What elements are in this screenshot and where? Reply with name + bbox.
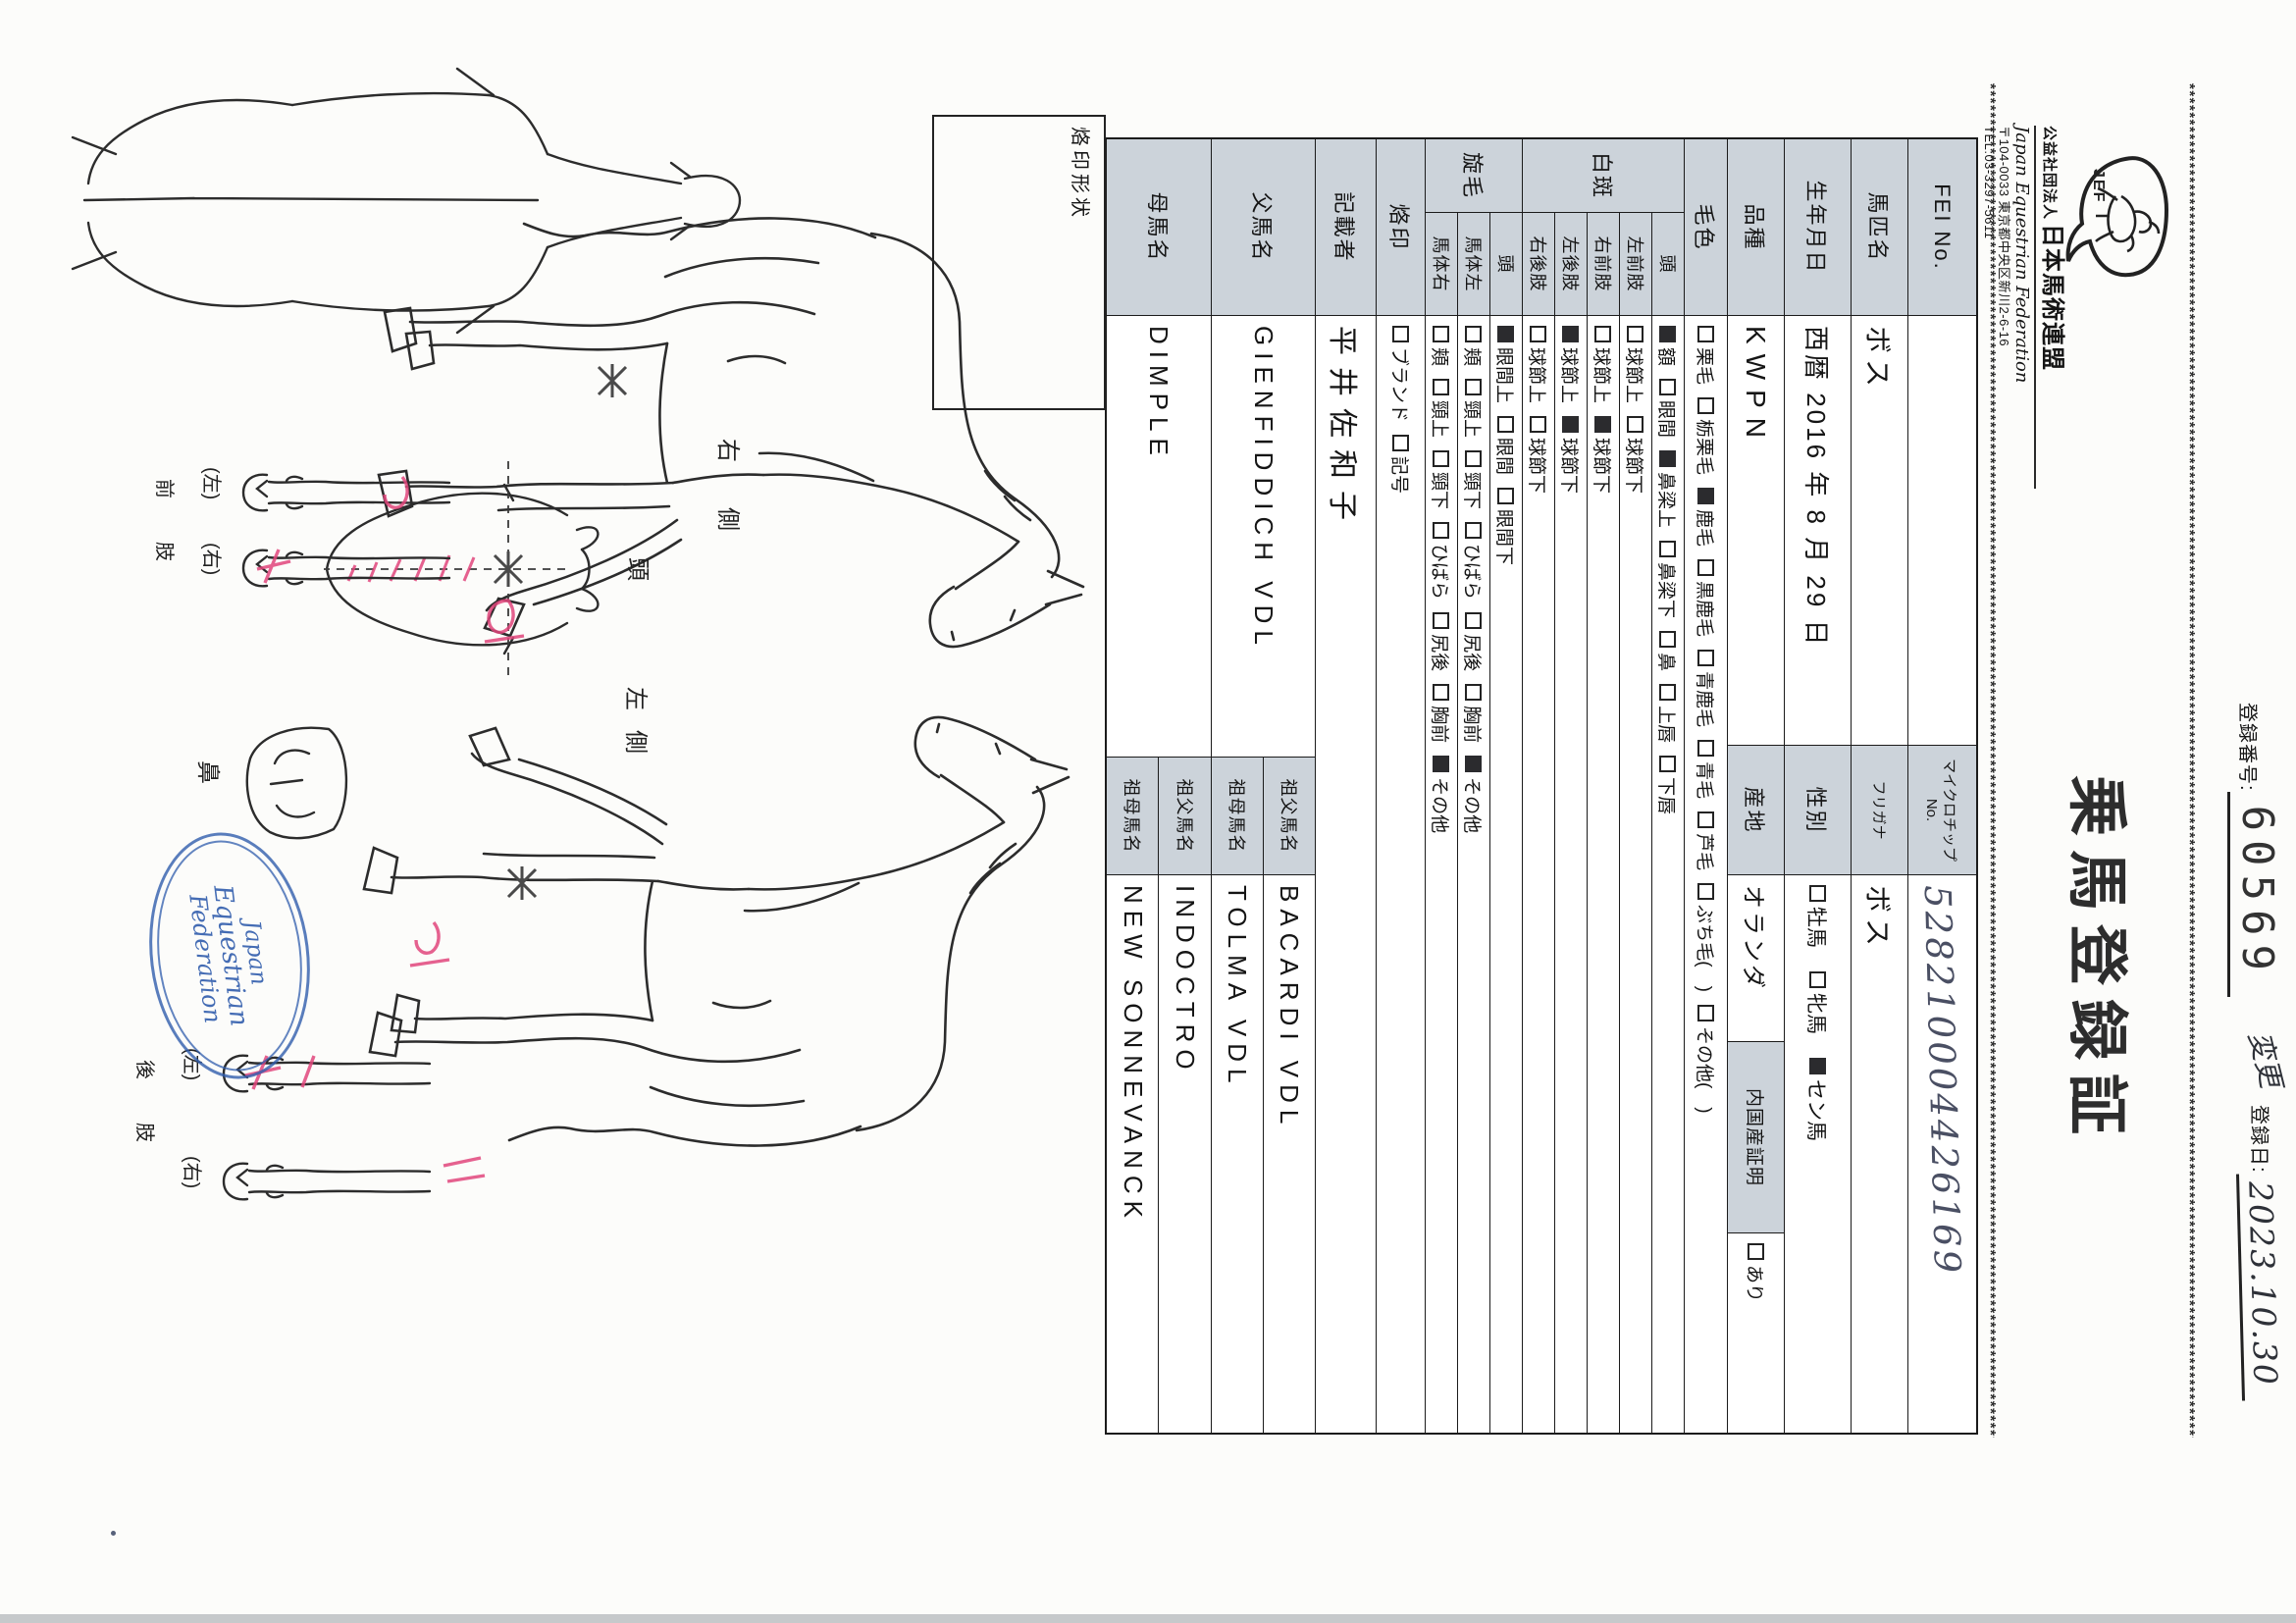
checkbox-label: 鼻: [1655, 653, 1682, 671]
checkbox-label: 栃栗毛: [1693, 419, 1719, 475]
checkbox-label: 栗毛: [1693, 347, 1719, 385]
hindlimb-label: 後肢: [132, 1060, 161, 1185]
checkbox-icon: [1628, 326, 1644, 342]
checkbox-option: 眼間上: [1493, 326, 1520, 403]
table-row-birth: 生年月日 西暦 2016 年 8 月 29 日 性別 牡馬牝馬セン馬: [1784, 139, 1851, 1433]
body-whorl-x-marks: [508, 364, 626, 900]
recorder-label: 記載者: [1316, 139, 1376, 316]
checkbox-checked-icon: [1660, 326, 1677, 342]
organization-name-en: Japan Equestrian Federation: [2011, 126, 2032, 489]
checkbox-checked-icon: [1697, 488, 1714, 504]
checkbox-icon: [1697, 883, 1714, 900]
checkbox-option: 青鹿毛: [1693, 650, 1719, 727]
table-row-brand: 烙印 ブランド記号: [1376, 139, 1425, 1433]
registration-date-label: 登録日:: [2239, 1105, 2275, 1174]
logo-jef-text: JEF: [2090, 169, 2107, 203]
checkbox-icon: [1660, 684, 1677, 701]
origin-value: オランダ: [1728, 875, 1784, 1042]
checkbox-label: 尻後: [1429, 634, 1455, 671]
checkbox-option: その他( ): [1693, 1005, 1719, 1114]
markings-options: 球節上球節下: [1620, 316, 1651, 1433]
checkbox-icon: [1434, 522, 1450, 539]
checkbox-option: 球節下: [1558, 416, 1585, 494]
checkbox-checked-icon: [1466, 756, 1483, 772]
checkbox-checked-icon: [1563, 416, 1580, 433]
checkbox-icon: [1697, 650, 1714, 666]
whorls-part-label: 馬体左: [1458, 213, 1489, 316]
decorative-asterisk-border-top: ****************************************…: [2178, 83, 2198, 1438]
horse-diagram-area: 烙印形状: [0, 0, 1109, 1623]
markings-options: 額眼間鼻梁上鼻梁下鼻上唇下唇: [1652, 316, 1684, 1433]
checkbox-label: 牡馬: [1803, 907, 1833, 948]
registration-number-label: 登録番号:: [2227, 703, 2264, 792]
checkbox-checked-icon: [1660, 450, 1677, 467]
organization-name: 公益社団法人日本馬術連盟: [2034, 126, 2072, 489]
checkbox-icon: [1498, 488, 1515, 504]
checkbox-icon: [1660, 631, 1677, 648]
ink-dot-artifact: [111, 1531, 116, 1536]
checkbox-option: 球節下: [1526, 416, 1552, 494]
markings-row-right-hind: 右後肢 球節上球節下: [1523, 213, 1554, 1433]
checkbox-option: 胸前: [1429, 684, 1455, 743]
whorls-options: 眼間上眼間眼間下: [1490, 316, 1522, 1433]
recorder-value: 平井佐和子: [1316, 316, 1376, 1433]
organization-prefix: 公益社団法人: [2041, 126, 2058, 220]
coat-color-label: 毛色: [1685, 139, 1727, 316]
checkbox-label: 芦毛: [1693, 833, 1719, 870]
head-label: 頭: [623, 557, 657, 581]
right-side-label: 右側: [713, 439, 748, 576]
checkbox-option: ひばら: [1429, 522, 1455, 600]
checkbox-label: 胸前: [1461, 706, 1487, 743]
grandsire-label: 祖父馬名: [1264, 758, 1315, 875]
checkbox-option: 球節上: [1558, 326, 1585, 403]
microchip-label: マイクロチップNo.: [1908, 746, 1976, 875]
checkbox-label: 牝馬: [1803, 993, 1833, 1034]
checkbox-label: 頬: [1429, 347, 1455, 366]
checkbox-option: 尻後: [1429, 612, 1455, 671]
checkbox-label: 頸下: [1429, 472, 1455, 509]
whorls-row-body-right: 馬体右 頬頸上頸下ひばら尻後胸前その他: [1426, 213, 1457, 1433]
markings-part-label: 左前肢: [1620, 213, 1651, 316]
checkbox-option: 下唇: [1655, 756, 1682, 814]
checkbox-icon: [1466, 612, 1483, 629]
checkbox-option: ぶち毛( ): [1693, 883, 1719, 992]
checkbox-option: 球節下: [1591, 416, 1617, 494]
checkbox-icon: [1595, 326, 1612, 342]
checkbox-option: 鼻梁下: [1655, 541, 1682, 618]
domestic-certificate-options: あり: [1728, 1233, 1784, 1433]
checkbox-option: 尻後: [1461, 612, 1487, 671]
dorsal-view-horse-drawing: [73, 69, 740, 333]
birth-date-label: 生年月日: [1785, 139, 1851, 316]
registration-date-value: 2023.10.30: [2236, 1173, 2285, 1400]
checkbox-option: 頬: [1429, 326, 1455, 366]
domestic-certificate-label: 内国産証明: [1728, 1042, 1784, 1233]
checkbox-label: 頸上: [1461, 400, 1487, 438]
checkbox-label: 球節上: [1623, 347, 1649, 403]
dam-label: 母馬名: [1107, 139, 1211, 316]
checkbox-label: 球節下: [1591, 438, 1617, 494]
dam-value: DIMPLE: [1107, 316, 1211, 758]
checkbox-label: ぶち毛( ): [1693, 905, 1719, 992]
checkbox-label: ひばら: [1429, 544, 1455, 600]
markings-part-label: 右後肢: [1523, 213, 1554, 316]
markings-group-label: 白斑: [1523, 139, 1684, 213]
granddam-label: 祖母馬名: [1107, 758, 1159, 875]
left-fore-leg-drawing: [243, 475, 449, 511]
whorls-row-head: 頭 眼間上眼間眼間下: [1489, 213, 1522, 1433]
left-side-horse-drawing: [364, 717, 1069, 1146]
sire-value: GIENFIDDICH VDL: [1212, 316, 1315, 758]
checkbox-label: 頸上: [1429, 400, 1455, 438]
checkbox-option: 額: [1655, 326, 1682, 366]
sire-granddam-row: 祖母馬名 TOLMA VDL: [1212, 758, 1263, 1433]
organization-name-jp: 日本馬術連盟: [2039, 224, 2065, 371]
dam-grandsire-row: 祖父馬名 INDOCTRO: [1159, 758, 1212, 1433]
organization-address: 〒104-0033 東京都中央区新川2-6-16: [1997, 126, 2011, 489]
decorative-asterisk-border-bottom: ****************************************…: [1979, 83, 1999, 1438]
checkbox-label: 額: [1655, 347, 1682, 366]
checkbox-label: ひばら: [1461, 544, 1487, 600]
granddam-value: NEW SONNEVANCK: [1107, 875, 1159, 1433]
checkbox-option: セン馬: [1803, 1058, 1833, 1141]
registration-date: 変更 登録日: 2023.10.30: [2239, 1032, 2282, 1400]
checkbox-option: 鹿毛: [1693, 488, 1719, 547]
forelimb-label: 前肢: [152, 479, 181, 604]
checkbox-icon: [1466, 326, 1483, 342]
checkbox-checked-icon: [1434, 756, 1450, 772]
checkbox-option: 鼻梁上: [1655, 450, 1682, 528]
grandsire-value: BACARDI VDL: [1264, 875, 1315, 1433]
checkbox-label: セン馬: [1803, 1079, 1833, 1141]
furigana-label: フリガナ: [1852, 746, 1907, 875]
scan-edge-shadow: [0, 1614, 2296, 1623]
markings-part-label: 頭: [1652, 213, 1684, 316]
table-row-name: 馬匹名 ボス フリガナ ボス: [1851, 139, 1907, 1433]
checkbox-option: 栃栗毛: [1693, 397, 1719, 475]
checkbox-option: その他: [1429, 756, 1455, 833]
granddam-label: 祖母馬名: [1212, 758, 1263, 875]
sex-options: 牡馬牝馬セン馬: [1785, 875, 1851, 1433]
sire-label: 父馬名: [1212, 139, 1315, 316]
checkbox-label: 球節下: [1526, 438, 1552, 494]
markings-part-label: 左後肢: [1555, 213, 1587, 316]
horse-name-value: ボス: [1852, 316, 1907, 746]
right-fore-leg-drawing: [243, 550, 449, 587]
checkbox-icon: [1434, 326, 1450, 342]
brand-label: 烙印: [1377, 139, 1425, 316]
checkbox-option: 芦毛: [1693, 811, 1719, 870]
checkbox-option: ひばら: [1461, 522, 1487, 600]
checkbox-label: 青毛: [1693, 761, 1719, 799]
whorls-part-label: 馬体右: [1426, 213, 1457, 316]
checkbox-option: 頸上: [1429, 379, 1455, 438]
nose-label: 鼻: [193, 760, 228, 784]
checkbox-label: 球節下: [1623, 438, 1649, 494]
checkbox-label: 鼻梁下: [1655, 562, 1682, 618]
checkbox-icon: [1392, 326, 1409, 342]
checkbox-option: 球節上: [1623, 326, 1649, 403]
checkbox-label: 球節上: [1591, 347, 1617, 403]
markings-row-left-hind: 左後肢 球節上球節下: [1554, 213, 1587, 1433]
registration-number-value: 60569: [2227, 792, 2282, 997]
checkbox-checked-icon: [1809, 1058, 1826, 1074]
fei-no-value: [1908, 316, 1976, 746]
checkbox-label: 尻後: [1461, 634, 1487, 671]
checkbox-option: 頸上: [1461, 379, 1487, 438]
checkbox-label: 青鹿毛: [1693, 671, 1719, 727]
registration-certificate-sheet: 登録番号: 60569 変更 登録日: 2023.10.30 *********…: [0, 0, 2296, 1623]
whorls-options: 頬頸上頸下ひばら尻後胸前その他: [1426, 316, 1457, 1433]
checkbox-label: その他: [1461, 777, 1487, 833]
checkbox-icon: [1660, 756, 1677, 772]
checkbox-icon: [1466, 522, 1483, 539]
whorls-part-label: 頭: [1490, 213, 1522, 316]
checkbox-label: 眼間: [1493, 438, 1520, 475]
right-hind-leg-drawing: [224, 1164, 430, 1200]
checkbox-icon: [1628, 416, 1644, 433]
checkbox-label: 胸前: [1429, 706, 1455, 743]
checkbox-option: 青毛: [1693, 740, 1719, 799]
checkbox-icon: [1434, 450, 1450, 467]
checkbox-option: 球節上: [1526, 326, 1552, 403]
table-row-coat: 毛色 栗毛栃栗毛鹿毛黒鹿毛青鹿毛青毛芦毛ぶち毛( )その他( ): [1684, 139, 1727, 1433]
checkbox-label: 鹿毛: [1693, 509, 1719, 547]
checkbox-icon: [1697, 740, 1714, 757]
sire-grandsire-row: 祖父馬名 BACARDI VDL: [1263, 758, 1315, 1433]
hind-right-paren-label: (右): [180, 1156, 208, 1188]
federation-stamp: Japan Equestrian Federation: [135, 823, 324, 1088]
checkbox-icon: [1392, 435, 1409, 451]
checkbox-icon: [1498, 416, 1515, 433]
checkbox-option: 頸下: [1461, 450, 1487, 509]
checkbox-label: 鼻梁上: [1655, 472, 1682, 528]
whorls-row-body-left: 馬体左 頬頸上頸下ひばら尻後胸前その他: [1457, 213, 1489, 1433]
grandsire-value: INDOCTRO: [1160, 875, 1212, 1433]
registration-table: FEI No. マイクロチップNo. 528210004426169 馬匹名 ボ…: [1105, 137, 1978, 1435]
checkbox-icon: [1660, 541, 1677, 557]
microchip-value: 528210004426169: [1916, 885, 1968, 1277]
checkbox-label: 眼間上: [1493, 347, 1520, 403]
checkbox-icon: [1466, 450, 1483, 467]
horse-name-label: 馬匹名: [1852, 139, 1907, 316]
checkbox-label: 記号: [1387, 456, 1414, 494]
breed-label: 品種: [1728, 139, 1784, 316]
checkbox-icon: [1809, 971, 1826, 988]
checkbox-icon: [1697, 811, 1714, 828]
checkbox-option: 鼻: [1655, 631, 1682, 671]
checkbox-option: 記号: [1387, 435, 1414, 494]
table-row-fei: FEI No. マイクロチップNo. 528210004426169: [1907, 139, 1976, 1433]
checkbox-label: あり: [1743, 1265, 1769, 1302]
breed-value: KWPN: [1728, 316, 1784, 746]
sex-label: 性別: [1785, 746, 1851, 875]
checkbox-option: 胸前: [1461, 684, 1487, 743]
whorls-group-label: 旋毛: [1426, 139, 1522, 213]
granddam-value: TOLMA VDL: [1212, 875, 1263, 1433]
checkbox-option: 牝馬: [1803, 971, 1833, 1034]
checkbox-icon: [1466, 379, 1483, 395]
checkbox-label: 頬: [1461, 347, 1487, 366]
logo-balloon-outline: [2068, 158, 2166, 275]
checkbox-label: その他( ): [1693, 1026, 1719, 1114]
brand-shape-box: 烙印形状: [932, 115, 1106, 410]
table-row-recorder: 記載者 平井佐和子: [1315, 139, 1376, 1433]
checkbox-checked-icon: [1498, 326, 1515, 342]
checkbox-label: 頸下: [1461, 472, 1487, 509]
markings-options: 球節上球節下: [1523, 316, 1554, 1433]
coat-color-options: 栗毛栃栗毛鹿毛黒鹿毛青鹿毛青毛芦毛ぶち毛( )その他( ): [1685, 316, 1727, 1433]
checkbox-checked-icon: [1563, 326, 1580, 342]
checkbox-option: 球節下: [1623, 416, 1649, 494]
checkbox-option: 上唇: [1655, 684, 1682, 743]
table-row-sire: 父馬名 GIENFIDDICH VDL 祖父馬名 BACARDI VDL 祖母馬…: [1211, 139, 1315, 1433]
checkbox-label: 上唇: [1655, 706, 1682, 743]
checkbox-label: 眼間: [1655, 400, 1682, 438]
checkbox-label: その他: [1429, 777, 1455, 833]
table-row-whorls: 旋毛 頭 眼間上眼間眼間下 馬体左 頬頸上頸下ひばら尻後胸前その他 馬体右 頬頸…: [1425, 139, 1522, 1433]
checkbox-option: 頬: [1461, 326, 1487, 366]
checkbox-label: ブランド: [1387, 347, 1414, 422]
furigana-value: ボス: [1852, 875, 1907, 1433]
checkbox-icon: [1531, 326, 1547, 342]
checkbox-option: 眼間: [1493, 416, 1520, 475]
checkbox-icon: [1531, 416, 1547, 433]
document-title: 乗馬登録証: [2059, 638, 2147, 1285]
checkbox-icon: [1697, 1005, 1714, 1021]
checkbox-checked-icon: [1595, 416, 1612, 433]
table-row-breed: 品種 KWPN 産地 オランダ 内国産証明 あり: [1727, 139, 1784, 1433]
change-annotation: 変更: [2240, 1026, 2294, 1091]
jef-logo: JEF: [2055, 139, 2172, 287]
checkbox-label: 球節下: [1558, 438, 1585, 494]
fore-left-paren-label: (左): [199, 467, 228, 499]
fore-right-paren-label: (右): [199, 543, 228, 575]
checkbox-option: 黒鹿毛: [1693, 559, 1719, 637]
brand-options: ブランド記号: [1377, 316, 1425, 1433]
checkbox-label: 下唇: [1655, 777, 1682, 814]
checkbox-option: 眼間下: [1493, 488, 1520, 565]
table-row-markings: 白斑 頭 額眼間鼻梁上鼻梁下鼻上唇下唇 左前肢 球節上球節下 右前肢 球節上球節…: [1522, 139, 1684, 1433]
left-side-label: 左側: [621, 687, 655, 773]
checkbox-icon: [1697, 559, 1714, 576]
origin-label: 産地: [1728, 746, 1784, 875]
checkbox-label: 球節上: [1558, 347, 1585, 403]
checkbox-icon: [1434, 612, 1450, 629]
checkbox-icon: [1809, 885, 1826, 902]
dam-granddam-row: 祖母馬名 NEW SONNEVANCK: [1107, 758, 1159, 1433]
markings-part-label: 右前肢: [1588, 213, 1619, 316]
checkbox-label: 眼間下: [1493, 509, 1520, 565]
checkbox-option: あり: [1743, 1243, 1769, 1302]
checkbox-icon: [1748, 1243, 1764, 1260]
markings-options: 球節上球節下: [1555, 316, 1587, 1433]
checkbox-label: 球節上: [1526, 347, 1552, 403]
checkbox-option: ブランド: [1387, 326, 1414, 422]
whorls-options: 頬頸上頸下ひばら尻後胸前その他: [1458, 316, 1489, 1433]
birth-date-value: 西暦 2016 年 8 月 29 日: [1785, 316, 1851, 746]
checkbox-icon: [1697, 326, 1714, 342]
fei-no-label: FEI No.: [1908, 139, 1976, 316]
markings-row-head: 頭 額眼間鼻梁上鼻梁下鼻上唇下唇: [1651, 213, 1684, 1433]
checkbox-icon: [1697, 397, 1714, 414]
checkbox-option: 栗毛: [1693, 326, 1719, 385]
checkbox-icon: [1434, 379, 1450, 395]
head-front-view-drawing: [324, 461, 598, 677]
checkbox-option: その他: [1461, 756, 1487, 833]
checkbox-icon: [1434, 684, 1450, 701]
grandsire-label: 祖父馬名: [1160, 758, 1212, 875]
checkbox-option: 頸下: [1429, 450, 1455, 509]
checkbox-icon: [1660, 379, 1677, 395]
checkbox-option: 眼間: [1655, 379, 1682, 438]
registration-number: 登録番号: 60569: [2227, 703, 2282, 997]
brand-shape-label: 烙印形状: [1068, 127, 1096, 408]
muzzle-view-drawing: [247, 728, 346, 838]
table-row-dam: 母馬名 DIMPLE 祖父馬名 INDOCTRO 祖母馬名 NEW SONNEV…: [1107, 139, 1211, 1433]
markings-row-right-fore: 右前肢 球節上球節下: [1587, 213, 1619, 1433]
markings-row-left-fore: 左前肢 球節上球節下: [1619, 213, 1651, 1433]
checkbox-option: 牡馬: [1803, 885, 1833, 948]
checkbox-option: 球節上: [1591, 326, 1617, 403]
checkbox-label: 黒鹿毛: [1693, 581, 1719, 637]
markings-options: 球節上球節下: [1588, 316, 1619, 1433]
checkbox-icon: [1466, 684, 1483, 701]
